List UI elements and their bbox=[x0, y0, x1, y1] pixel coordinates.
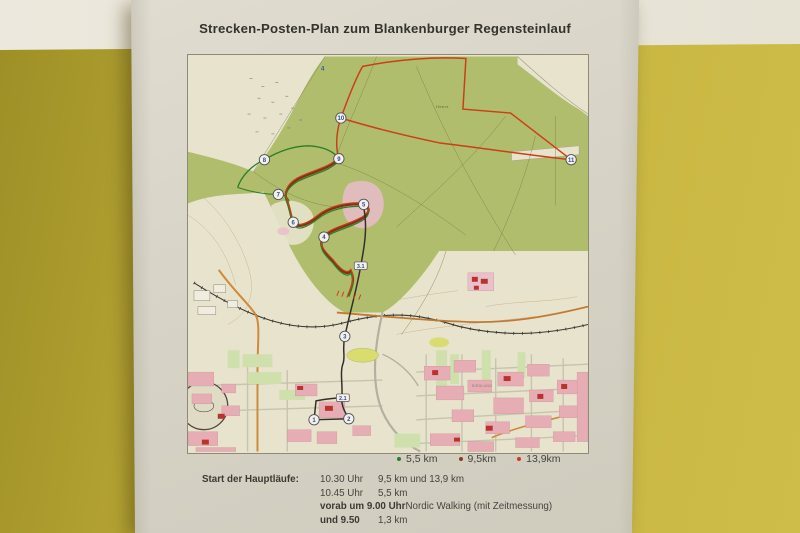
start-time-2: 10.45 Uhr bbox=[320, 488, 363, 499]
race-poster: Strecken-Posten-Plan zum Blankenburger R… bbox=[131, 0, 639, 533]
wall-photo: Strecken-Posten-Plan zum Blankenburger R… bbox=[0, 0, 800, 533]
start-time-1: 10.30 Uhr bbox=[320, 474, 363, 485]
schedule-heading: Start der Hauptläufe: bbox=[202, 474, 299, 485]
start-dist-1: 9,5 km und 13,9 km bbox=[378, 474, 464, 485]
poster-shadow-wrap: Strecken-Posten-Plan zum Blankenburger R… bbox=[0, 0, 800, 533]
nordic-walking-note: vorab um 9.00 Uhr Nordic Walking (mit Ze… bbox=[320, 501, 405, 512]
start-schedule: Start der Hauptläufe: 10.30 Uhr 9,5 km u… bbox=[131, 0, 639, 533]
start-time-4: und 9.50 bbox=[320, 515, 360, 526]
start-dist-2: 5,5 km bbox=[378, 488, 407, 499]
nordic-walking-time: vorab um 9.00 Uhr bbox=[320, 501, 405, 512]
start-dist-4: 1,3 km bbox=[378, 515, 407, 526]
nordic-walking-text: Nordic Walking (mit Zeitmessung) bbox=[405, 501, 552, 512]
